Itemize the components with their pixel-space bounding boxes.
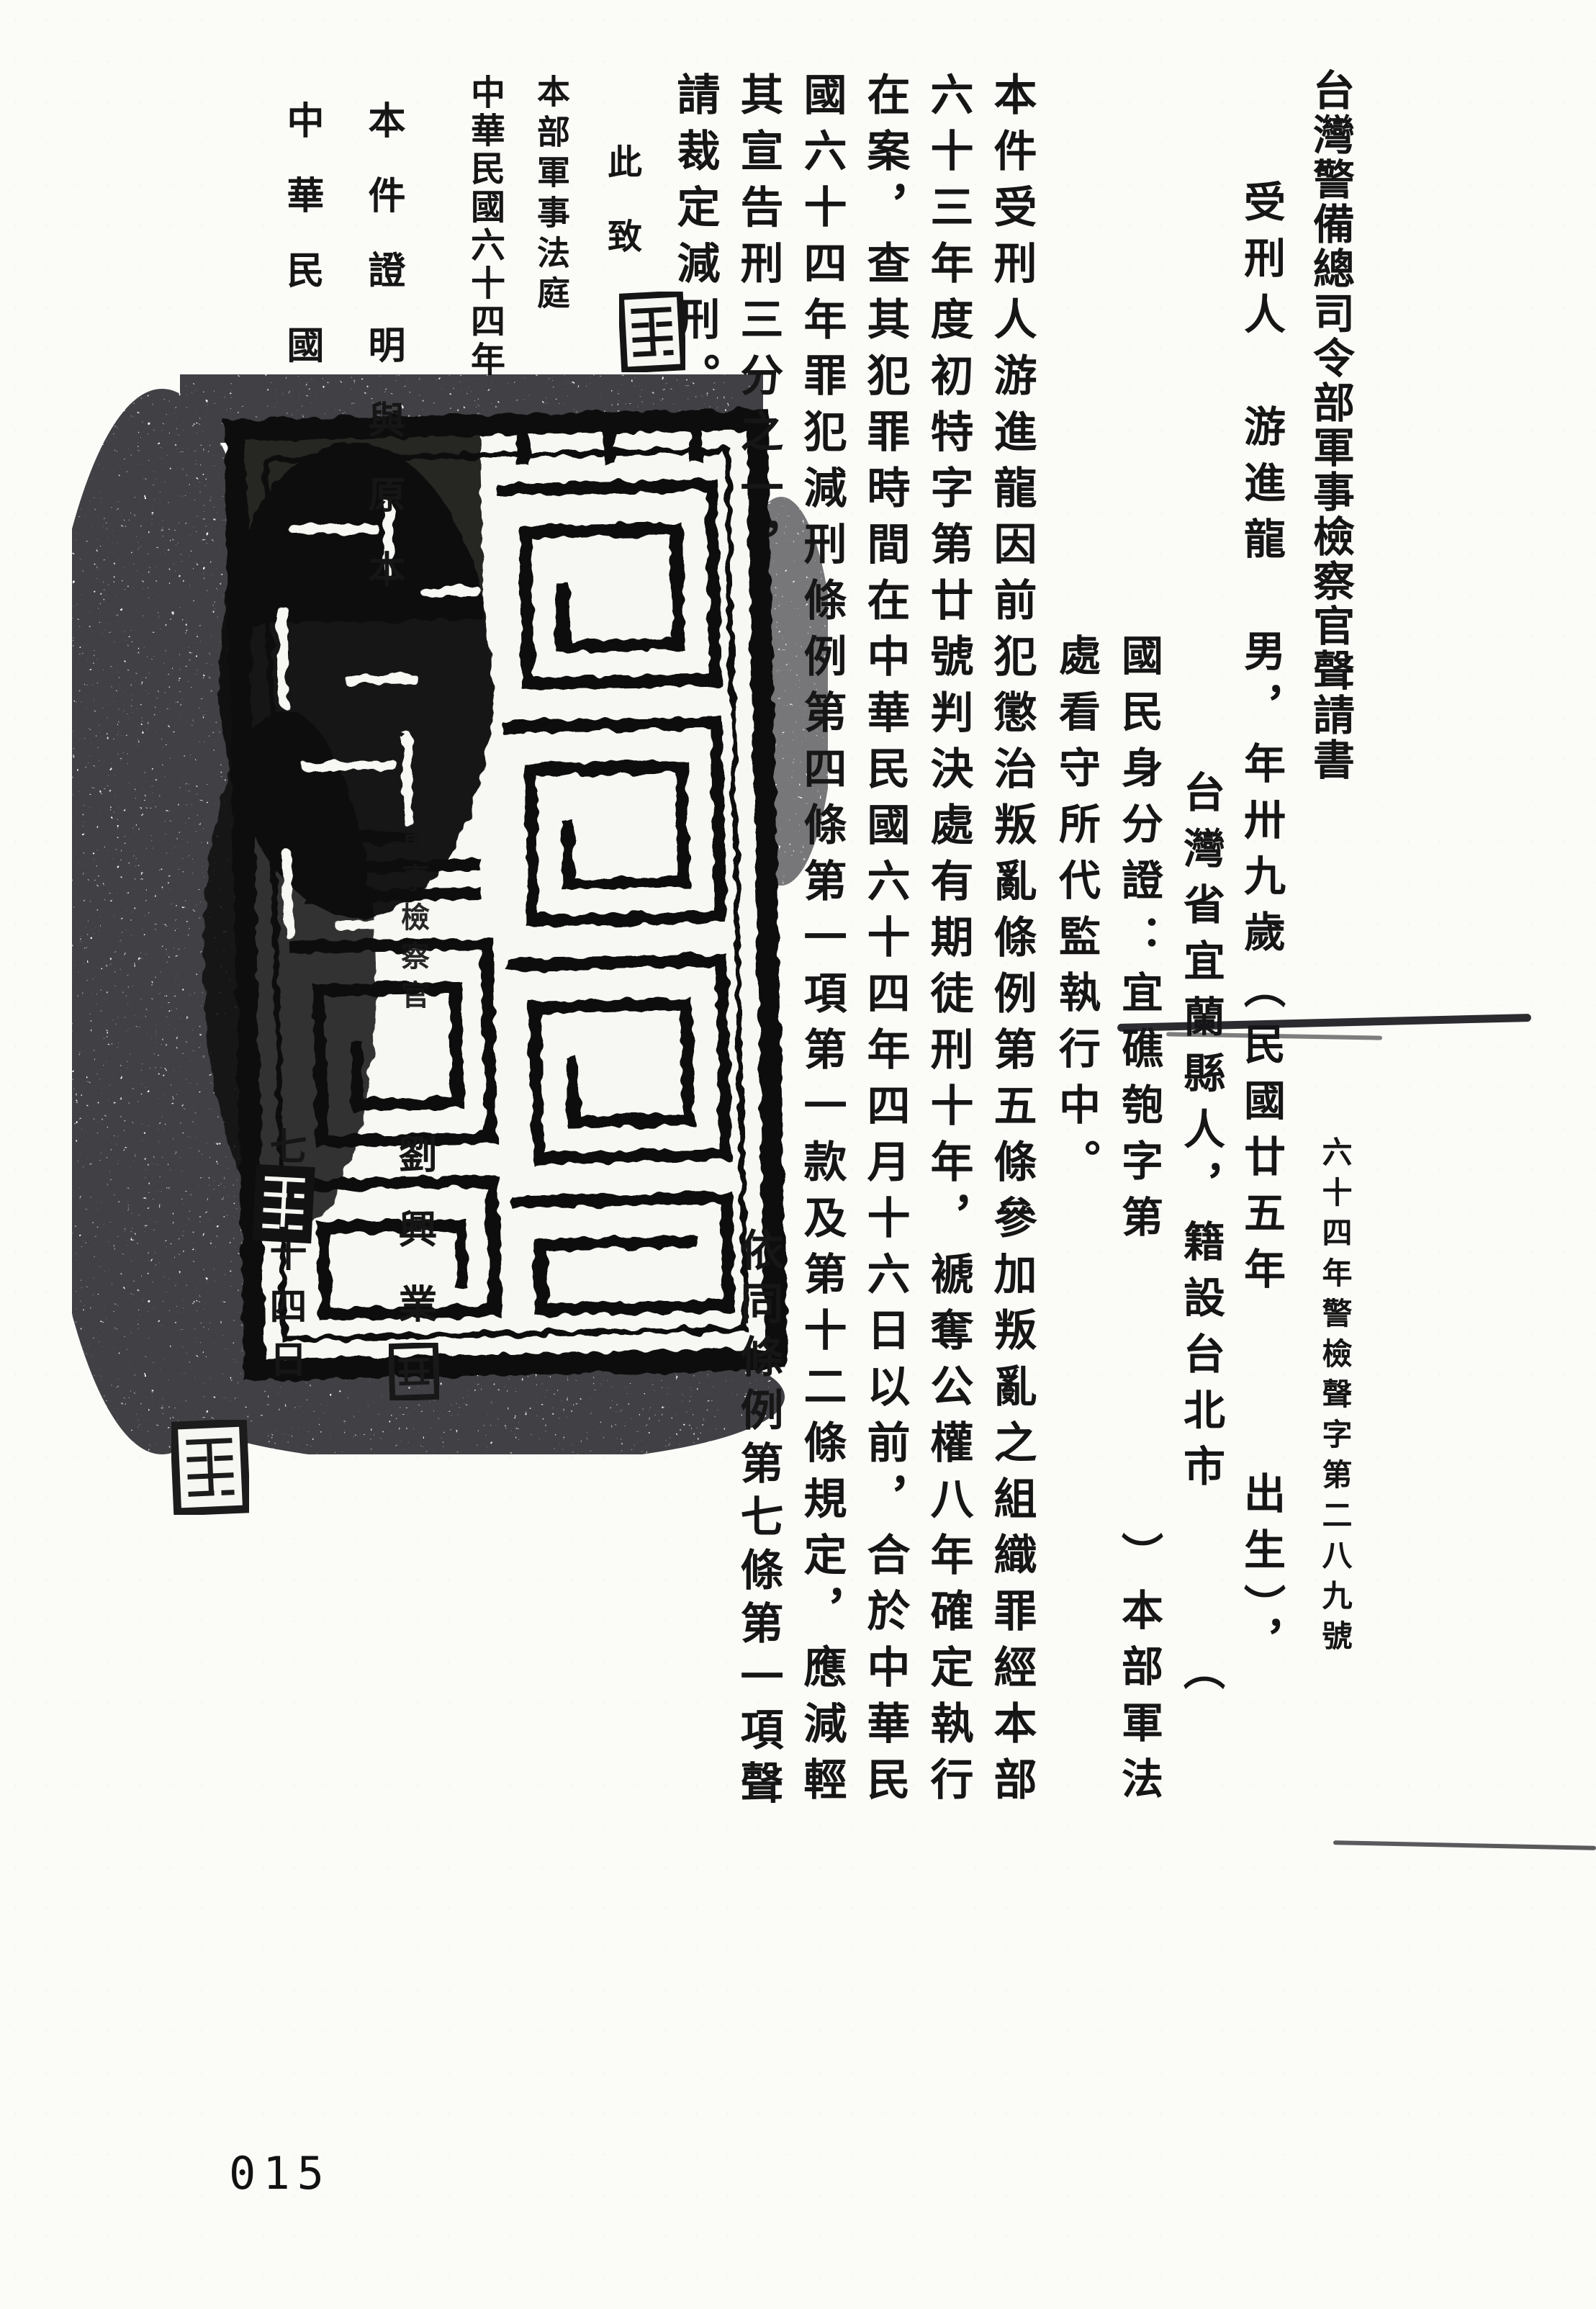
body-line-5a: 其宣告刑三分之一，	[736, 72, 780, 577]
certification-statement: 本件證明與原本無異	[364, 101, 401, 775]
page-number: 015	[229, 2147, 331, 2200]
document-page: 台灣警備總司令部軍事檢察官聲請書 六十四年警檢聲字第二八九號 受刑人 游進龍 男…	[0, 0, 1596, 2309]
party-line-1: 受刑人 游進龍 男，年卅九歲（民國廿五年 出生），	[1240, 180, 1281, 1675]
prosecutor-title: 軍事檢察官	[398, 824, 427, 1019]
large-official-seal	[72, 374, 828, 1454]
month-overlay-stamp	[252, 1163, 315, 1244]
small-registry-stamp-top	[619, 292, 685, 372]
certification-date-start: 中華民國	[282, 101, 320, 400]
body-line-1: 本件受刑人游進龍因前犯懲治叛亂條例第五條參加叛亂之組織罪經本部	[990, 72, 1033, 1813]
document-date: 中華民國六十四年	[466, 74, 501, 379]
party-line-3: 國民身分證：宜礁匏字第 ）本部軍法	[1117, 634, 1159, 1813]
recipient-court: 本部軍事法庭	[534, 74, 567, 316]
salutation: 此致	[603, 144, 638, 292]
body-line-5b: 依同條例第七條第一項聲	[736, 1228, 780, 1814]
prosecutor-personal-seal	[389, 1343, 439, 1400]
party-line-2: 台灣省宜蘭縣人，籍設台北市 （	[1179, 770, 1221, 1704]
party-line-4: 處看守所代監執行中。	[1055, 634, 1096, 1195]
document-title: 台灣警備總司令部軍事檢察官聲請書	[1309, 68, 1351, 783]
body-line-2: 六十三年度初特字第廿號判決處有期徒刑十年，褫奪公權八年確定執行	[927, 72, 970, 1813]
body-line-4: 國六十四年罪犯減刑條例第四條第一項第一款及第十二條規定，應減輕	[800, 72, 843, 1813]
body-line-3: 在案，查其犯罪時間在中華民國六十四年四月十六日以前，合於中華民	[863, 72, 906, 1813]
case-number: 六十四年警檢聲字第二八九號	[1319, 1136, 1349, 1660]
scan-streak	[1333, 1840, 1596, 1850]
prosecutor-name: 劉興業	[395, 1134, 433, 1359]
small-personal-seal-bottom-left	[171, 1420, 249, 1515]
